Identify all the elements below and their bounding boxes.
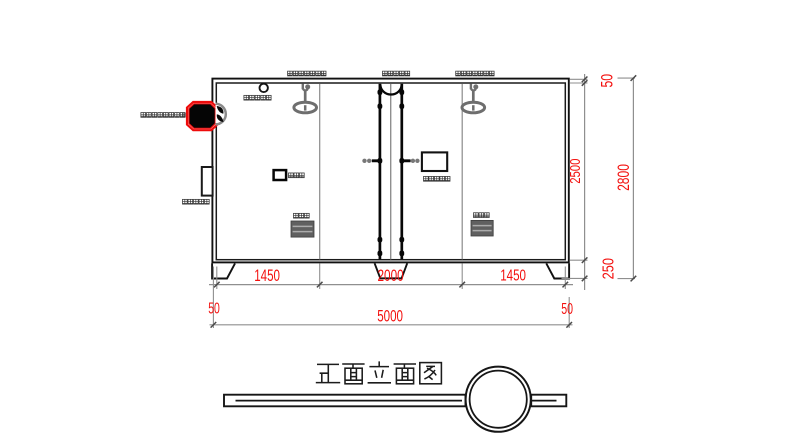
svg-text:50: 50 [599,74,617,88]
svg-text:50: 50 [208,301,220,318]
svg-text:50: 50 [561,301,573,318]
svg-text:2800: 2800 [614,164,633,191]
svg-text:2500: 2500 [567,159,584,184]
svg-text:2000: 2000 [378,266,404,285]
svg-text:250: 250 [601,258,618,279]
svg-text:1450: 1450 [500,267,526,284]
svg-text:5000: 5000 [377,306,403,325]
svg-text:1450: 1450 [254,266,280,285]
